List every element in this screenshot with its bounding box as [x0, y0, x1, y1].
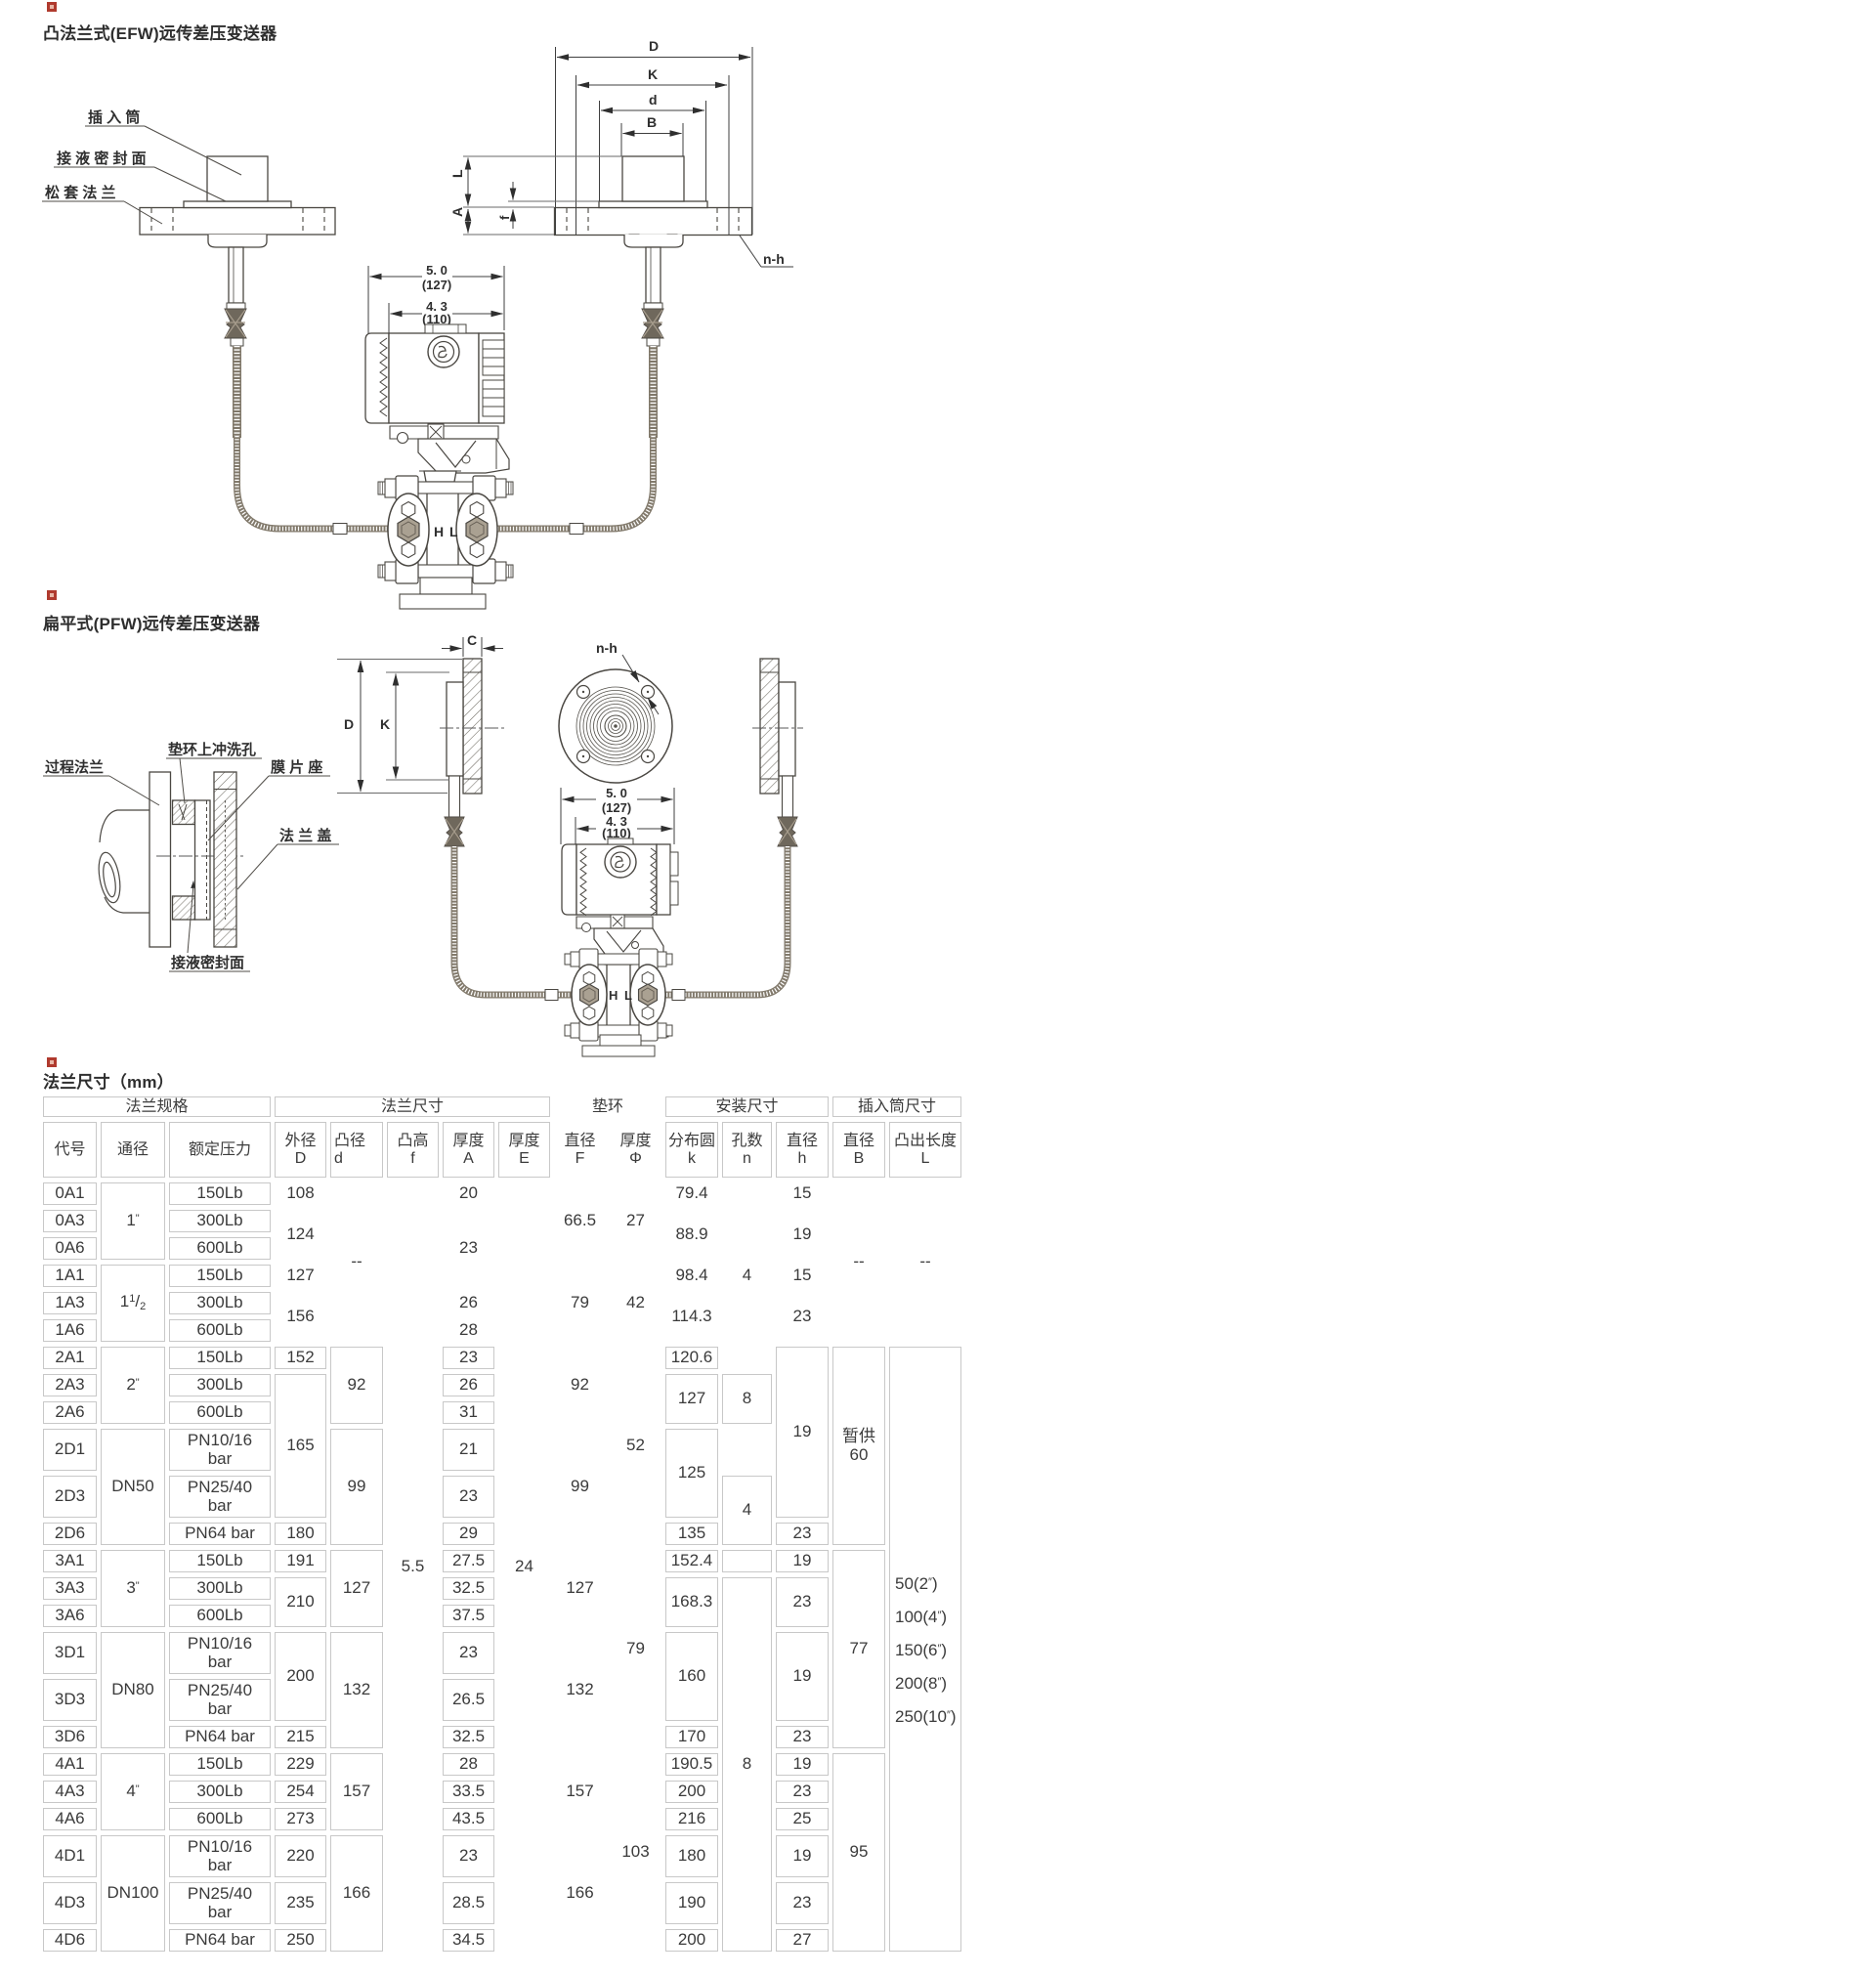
- svg-text:L: L: [624, 988, 632, 1003]
- svg-text:C: C: [467, 632, 477, 648]
- svg-text:L: L: [449, 524, 458, 539]
- svg-text:法 兰 盖: 法 兰 盖: [279, 827, 331, 844]
- svg-text:B: B: [647, 114, 657, 130]
- svg-text:A: A: [449, 207, 465, 217]
- svg-text:插 入 筒: 插 入 筒: [88, 108, 140, 126]
- svg-text:垫环上冲洗孔: 垫环上冲洗孔: [168, 741, 256, 758]
- svg-text:d: d: [649, 92, 658, 107]
- svg-text:过程法兰: 过程法兰: [45, 758, 104, 776]
- svg-text:K: K: [648, 66, 658, 82]
- svg-text:H: H: [434, 524, 444, 539]
- svg-text:n-h: n-h: [596, 640, 618, 656]
- svg-text:膜 片 座: 膜 片 座: [271, 758, 322, 776]
- svg-text:接液密封面: 接液密封面: [171, 954, 244, 971]
- svg-text:f: f: [497, 215, 512, 220]
- svg-text:K: K: [380, 716, 390, 732]
- svg-text:n-h: n-h: [763, 251, 785, 267]
- svg-text:D: D: [649, 38, 659, 54]
- svg-text:D: D: [344, 716, 354, 732]
- svg-text:5. 0: 5. 0: [426, 263, 448, 278]
- svg-text:(127): (127): [422, 278, 451, 292]
- svg-text:H: H: [609, 988, 618, 1003]
- svg-text:(127): (127): [602, 800, 631, 815]
- svg-text:接 液 密 封 面: 接 液 密 封 面: [57, 150, 147, 167]
- svg-text:L: L: [449, 169, 465, 178]
- svg-text:松 套 法 兰: 松 套 法 兰: [45, 184, 116, 201]
- svg-text:5. 0: 5. 0: [606, 786, 627, 800]
